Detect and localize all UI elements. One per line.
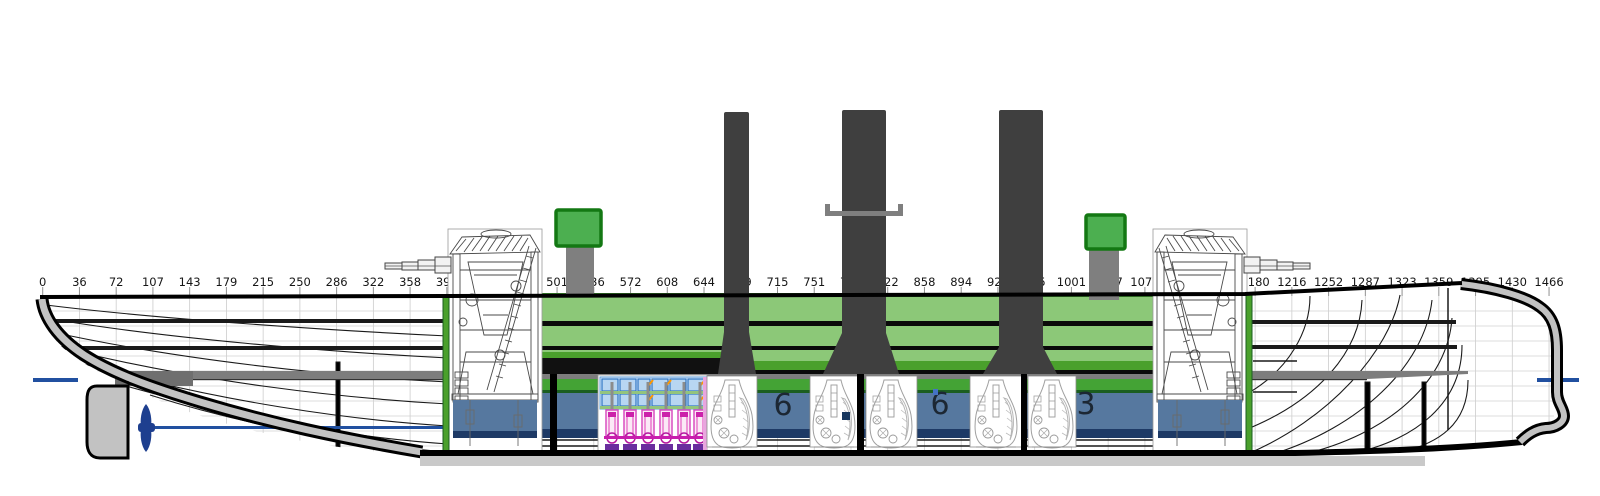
forward-casemate-dark-section [541,358,748,374]
ruler-station-label: 1001 [1057,275,1086,289]
ruler-station-label: 1216 [1277,275,1306,289]
ruler-station-label: 644 [693,275,715,289]
ruler-station-label: 179 [215,275,237,289]
ventilator-head [556,210,601,246]
ruler-station-label: 572 [620,275,642,289]
ruler-station-label: 215 [252,275,274,289]
stern-gear [87,386,155,458]
ventilator-trunk [566,245,594,297]
ship-profile-svg: 0367210714317921525028632235839442946550… [0,0,1600,496]
ruler-station-label: 715 [767,275,789,289]
ruler-station-label: 608 [656,275,678,289]
ruler-station-label: 250 [289,275,311,289]
ruler-station-label: 1252 [1314,275,1343,289]
ruler-station-label: 107 [142,275,164,289]
ruler-station-label: 751 [803,275,825,289]
ruler-station-label: 1466 [1534,275,1563,289]
ruler-station-label: 501 [546,275,568,289]
blue-tick-marker [933,389,938,395]
ruler-station-label: 143 [179,275,201,289]
navy-marker [842,412,850,420]
ruler-station-label: 36 [72,275,87,289]
bunker-label-3: 3 [1076,387,1095,422]
ruler-station-label: 322 [362,275,384,289]
rudder [87,386,128,458]
engine-room [598,375,707,452]
ruler-station-label: 358 [399,275,421,289]
bow-bulkhead-1 [1365,382,1370,452]
bunker-label-1: 6 [773,388,792,423]
ruler-station-label: 72 [109,275,124,289]
waterline-mark-stern [33,378,78,382]
ventilator-head [1086,215,1125,249]
propeller [138,404,155,452]
keel-strip [420,456,1425,466]
ruler-station-label: 894 [950,275,972,289]
ruler-station-label: 858 [913,275,935,289]
ship-diagram-canvas: 0367210714317921525028632235839442946550… [0,0,1600,496]
bow-collision-bulkhead [1422,382,1426,452]
ventilator-trunk [1089,247,1119,300]
ruler-station-label: 286 [326,275,348,289]
ruler-station-label: 0 [39,275,46,289]
